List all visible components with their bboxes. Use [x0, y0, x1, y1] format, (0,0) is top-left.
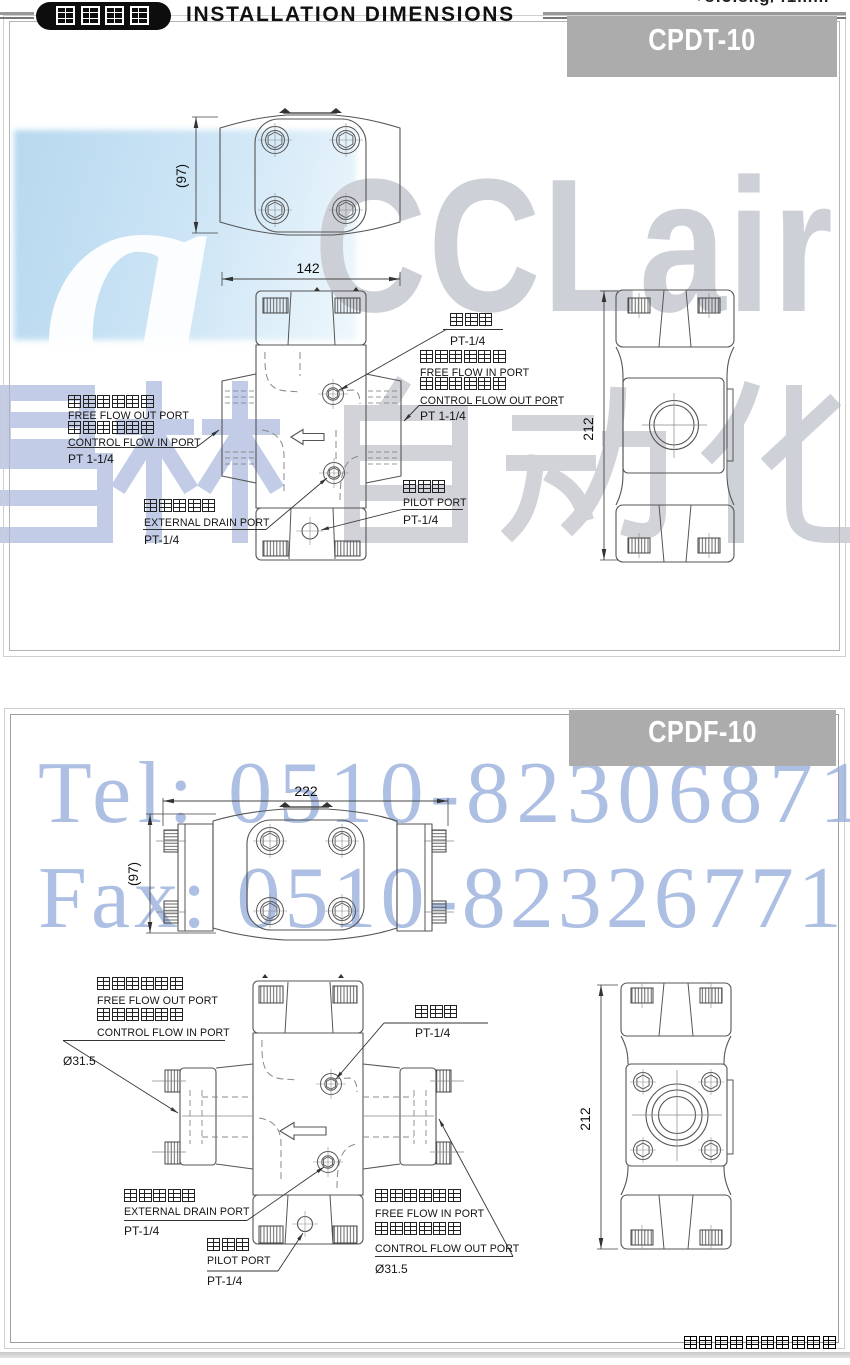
svg-text:222: 222 [294, 783, 318, 799]
svg-text:212: 212 [577, 1107, 593, 1131]
svg-text:212: 212 [580, 417, 596, 441]
svg-text:(97): (97) [174, 164, 189, 188]
svg-text:142: 142 [296, 260, 320, 276]
svg-text:(97): (97) [126, 862, 141, 886]
